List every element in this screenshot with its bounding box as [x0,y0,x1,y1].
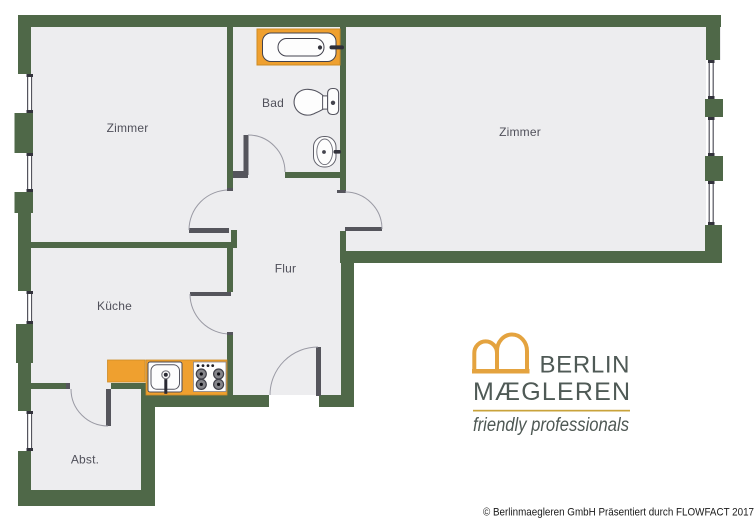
svg-text:Zimmer: Zimmer [107,121,149,135]
svg-text:© Berlinmaegleren GmbH Präsent: © Berlinmaegleren GmbH Präsentiert durch… [483,507,754,519]
svg-text:MÆGLEREN: MÆGLEREN [473,378,630,406]
svg-text:Abst.: Abst. [71,453,99,467]
svg-text:friendly professionals: friendly professionals [473,415,629,436]
svg-text:Bad: Bad [262,96,284,110]
svg-text:Zimmer: Zimmer [499,125,541,139]
svg-text:BERLIN: BERLIN [540,352,630,379]
svg-text:Flur: Flur [275,262,296,276]
svg-text:Küche: Küche [97,299,132,313]
